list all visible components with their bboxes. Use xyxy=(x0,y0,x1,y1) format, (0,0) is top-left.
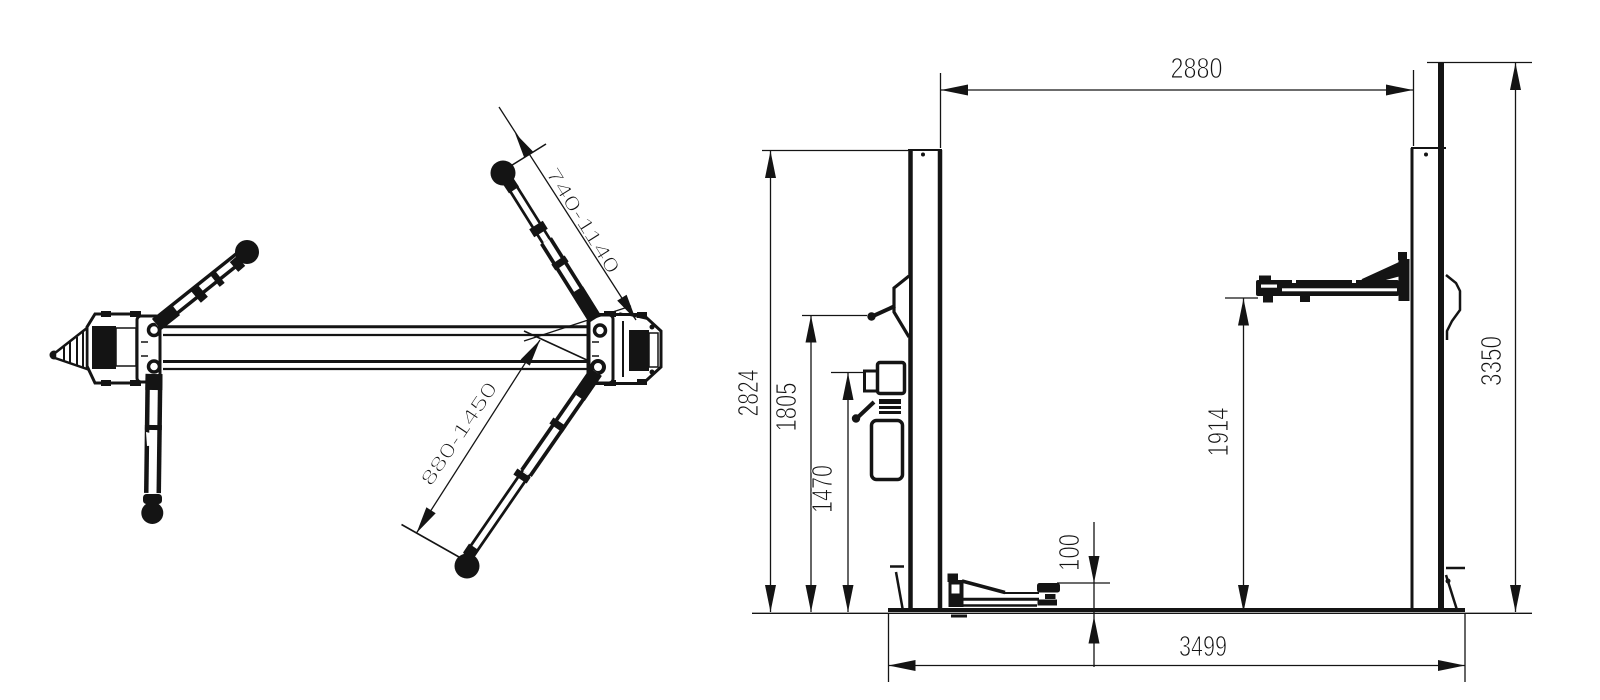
svg-text:1914: 1914 xyxy=(1203,407,1235,456)
svg-text:1470: 1470 xyxy=(807,465,839,513)
svg-text:2824: 2824 xyxy=(733,369,765,416)
svg-text:100: 100 xyxy=(1054,534,1086,571)
svg-text:3499: 3499 xyxy=(1179,631,1227,663)
svg-text:2880: 2880 xyxy=(1171,53,1223,85)
svg-text:1805: 1805 xyxy=(771,383,803,432)
svg-text:3350: 3350 xyxy=(1476,336,1508,386)
